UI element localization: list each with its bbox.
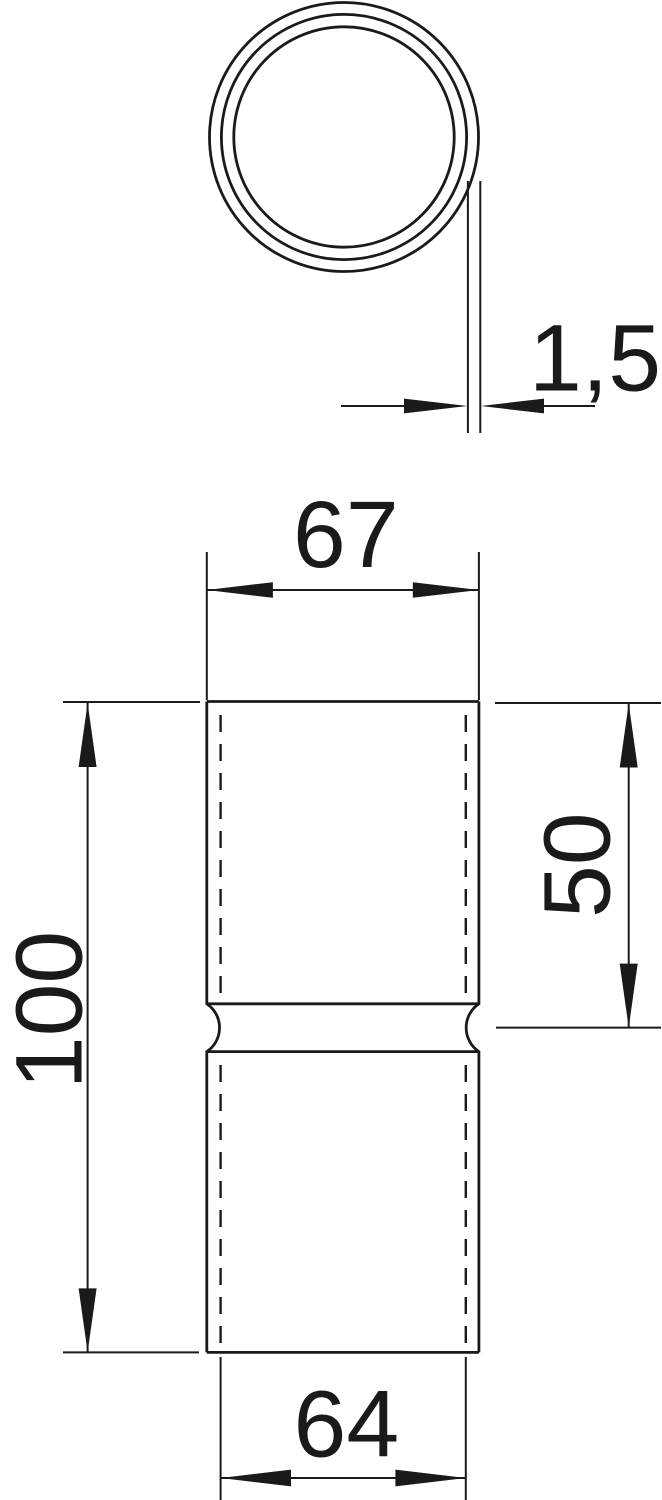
svg-text:1,5: 1,5 xyxy=(529,306,661,412)
svg-text:67: 67 xyxy=(293,482,399,588)
svg-text:64: 64 xyxy=(294,1372,400,1478)
svg-text:100: 100 xyxy=(0,931,103,1090)
svg-text:50: 50 xyxy=(525,812,631,918)
